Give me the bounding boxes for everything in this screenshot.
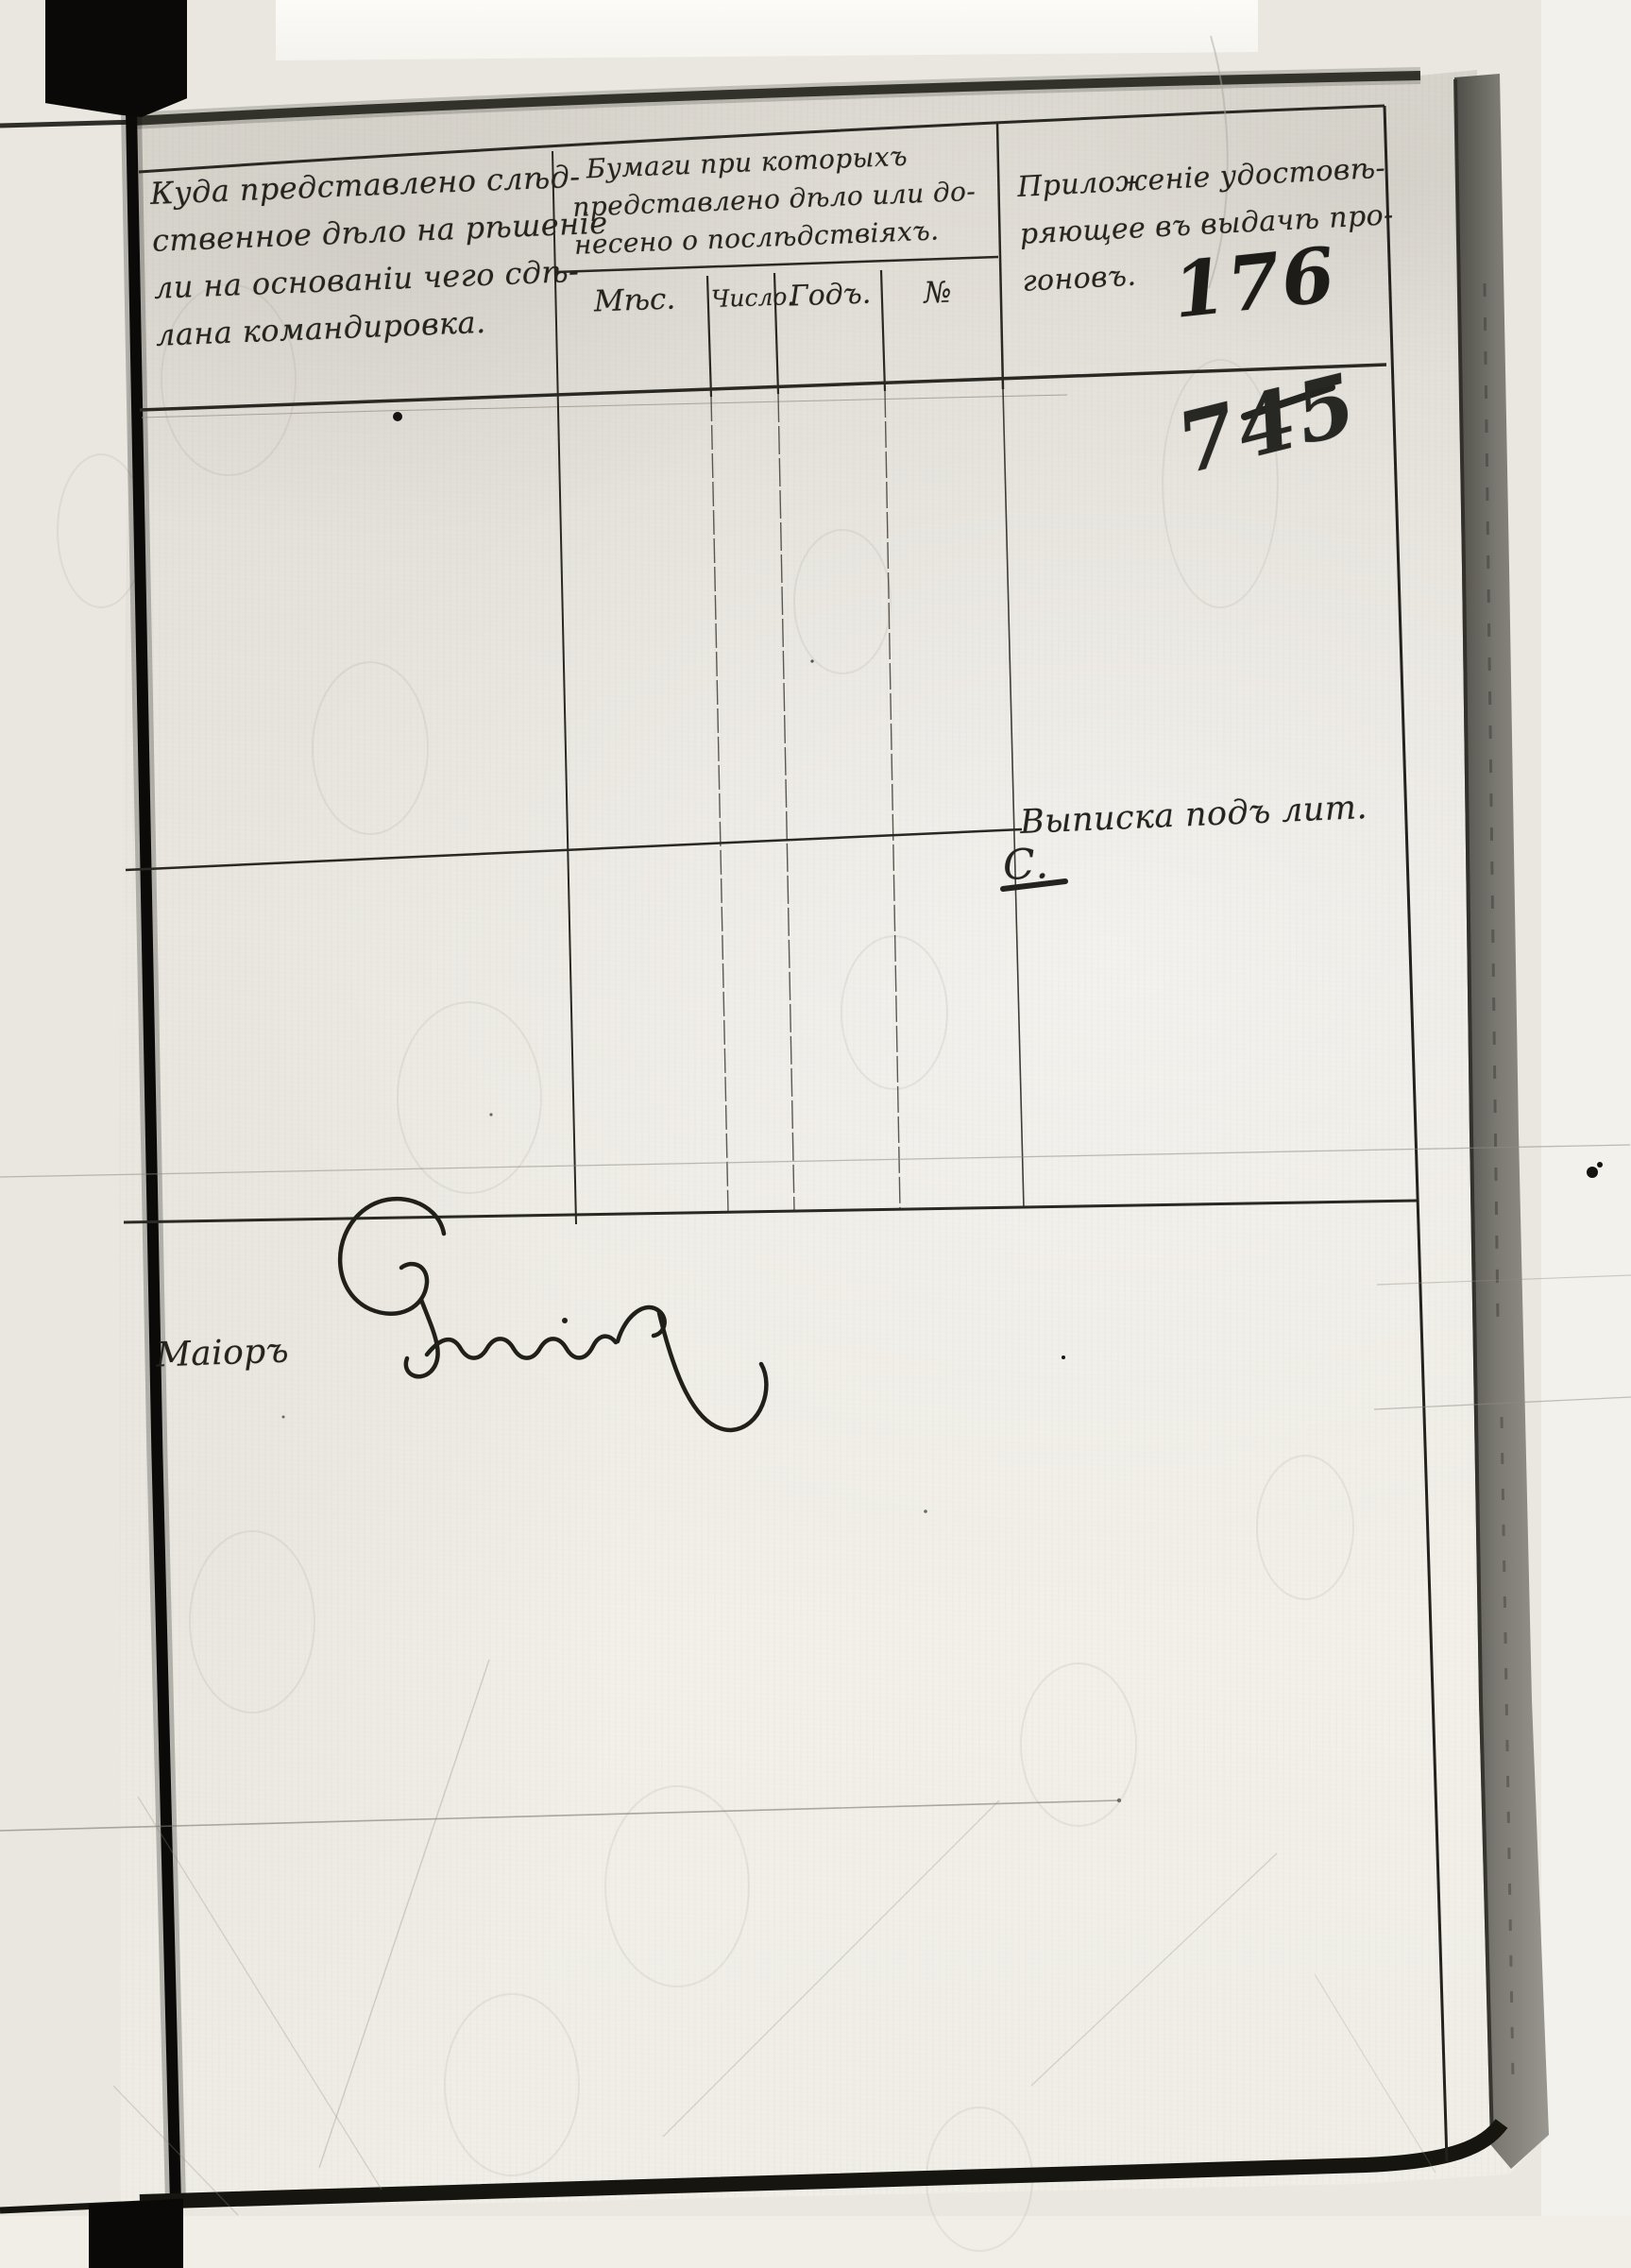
film-edge-bar-top xyxy=(45,0,187,117)
subcolumn-header-number: № xyxy=(885,274,990,312)
table-right-border xyxy=(1385,106,1447,2161)
table-bottom-border xyxy=(124,1201,1417,1222)
ink-specks xyxy=(282,412,1604,1513)
signature-flourish xyxy=(340,1199,766,1430)
subcolumn-header-year: Годъ. xyxy=(777,277,882,314)
archival-document-scan: Куда представлено слѣд- ственное дѣло на… xyxy=(0,0,1631,2268)
table-body-line xyxy=(778,394,794,1211)
table-body-line xyxy=(1003,389,1024,1208)
page-top-edge xyxy=(0,122,140,126)
film-scratches xyxy=(0,36,1631,2215)
table-body-line xyxy=(711,397,728,1213)
page-bottom-edge xyxy=(140,2123,1502,2202)
page-edge-strip xyxy=(1454,74,1549,2169)
page-top-edge-soft xyxy=(132,76,1420,121)
column-header-case-destination: Куда представлено слѣд- ственное дѣло на… xyxy=(149,153,591,359)
subcolumn-header-month: Мѣс. xyxy=(562,281,706,319)
entry-number: 176 xyxy=(1169,230,1341,335)
table-row-divider xyxy=(126,829,1022,870)
margin-note-letter: С. xyxy=(1002,840,1049,890)
table-body-line xyxy=(885,391,900,1209)
film-edge-bar-bottom xyxy=(89,2197,183,2268)
subcolumn-header-day: Число. xyxy=(711,283,776,313)
signature-rank: Маіоръ xyxy=(155,1332,289,1375)
book-spine-shadow xyxy=(131,110,176,2205)
column-header-papers: Бумаги при которыхъ представлено дѣло ил… xyxy=(570,133,1018,264)
